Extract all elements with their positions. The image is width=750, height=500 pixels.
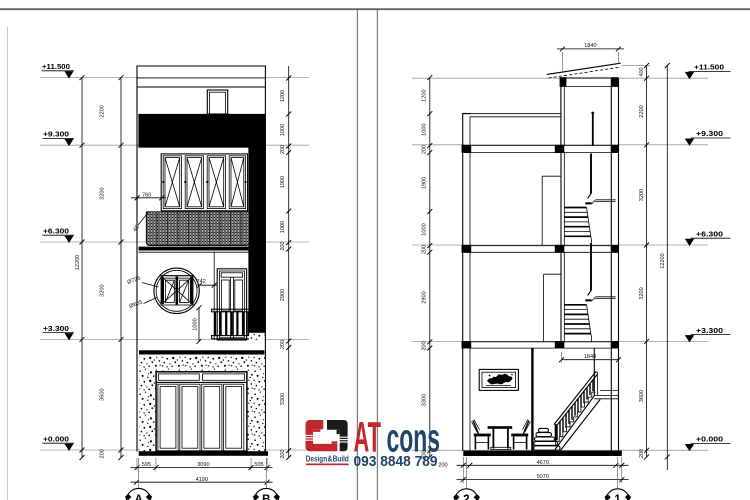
- svg-text:200: 200: [421, 341, 427, 350]
- svg-text:200: 200: [280, 241, 286, 250]
- svg-text:2900: 2900: [280, 289, 286, 301]
- svg-text:200: 200: [421, 245, 427, 254]
- svg-text:1200: 1200: [280, 90, 286, 102]
- svg-text:4670: 4670: [537, 460, 549, 466]
- svg-text:+9.300: +9.300: [696, 131, 723, 138]
- svg-text:200: 200: [280, 340, 286, 349]
- svg-text:3200: 3200: [100, 284, 106, 296]
- svg-text:1900: 1900: [421, 177, 427, 189]
- svg-text:+6.300: +6.300: [43, 228, 69, 235]
- svg-text:760: 760: [142, 192, 151, 198]
- svg-text:1: 1: [614, 494, 621, 500]
- svg-text:200: 200: [438, 462, 447, 468]
- svg-text:B: B: [262, 494, 270, 500]
- svg-text:+11.500: +11.500: [694, 65, 724, 72]
- svg-text:1000: 1000: [193, 318, 199, 330]
- svg-text:Design & Build: Design & Build: [306, 454, 349, 464]
- svg-text:1900: 1900: [280, 176, 286, 188]
- svg-text:400: 400: [639, 67, 645, 76]
- svg-text:1000: 1000: [421, 223, 427, 235]
- svg-text:595: 595: [142, 462, 151, 468]
- svg-text:1000: 1000: [280, 124, 286, 136]
- svg-text:505: 505: [254, 462, 263, 468]
- svg-text:200: 200: [100, 449, 106, 458]
- svg-text:+3.300: +3.300: [43, 326, 69, 333]
- svg-text:200: 200: [280, 145, 286, 154]
- svg-text:200: 200: [280, 449, 286, 458]
- svg-text:1000: 1000: [280, 221, 286, 233]
- svg-text:+6.300: +6.300: [696, 231, 723, 238]
- svg-text:093 8848 789: 093 8848 789: [354, 454, 438, 470]
- svg-text:3090: 3090: [197, 462, 209, 468]
- svg-text:1200: 1200: [421, 89, 427, 101]
- svg-text:3300: 3300: [280, 393, 286, 405]
- svg-text:+3.300: +3.300: [696, 328, 723, 335]
- svg-text:742: 742: [197, 279, 206, 285]
- svg-text:3200: 3200: [100, 187, 106, 199]
- svg-text:200: 200: [639, 449, 645, 458]
- svg-text:12200: 12200: [660, 253, 666, 269]
- svg-text:+11.500: +11.500: [42, 64, 70, 71]
- svg-text:3600: 3600: [639, 390, 645, 402]
- svg-text:12200: 12200: [75, 255, 81, 271]
- svg-text:3200: 3200: [639, 189, 645, 201]
- svg-text:3600: 3600: [100, 388, 106, 400]
- svg-text:2200: 2200: [100, 105, 106, 117]
- svg-text:3300: 3300: [421, 394, 427, 406]
- svg-text:1840: 1840: [584, 43, 596, 49]
- svg-text:+0.000: +0.000: [43, 436, 69, 443]
- svg-text:A: A: [134, 494, 142, 500]
- svg-text:1000: 1000: [421, 123, 427, 135]
- svg-text:2900: 2900: [421, 291, 427, 303]
- svg-text:4190: 4190: [196, 477, 208, 483]
- svg-text:2200: 2200: [639, 105, 645, 117]
- svg-text:5070: 5070: [537, 474, 549, 480]
- svg-text:+9.300: +9.300: [43, 132, 69, 139]
- svg-text:3200: 3200: [639, 287, 645, 299]
- svg-text:2: 2: [463, 494, 469, 500]
- svg-text:+0.000: +0.000: [696, 437, 723, 444]
- svg-text:200: 200: [421, 145, 427, 154]
